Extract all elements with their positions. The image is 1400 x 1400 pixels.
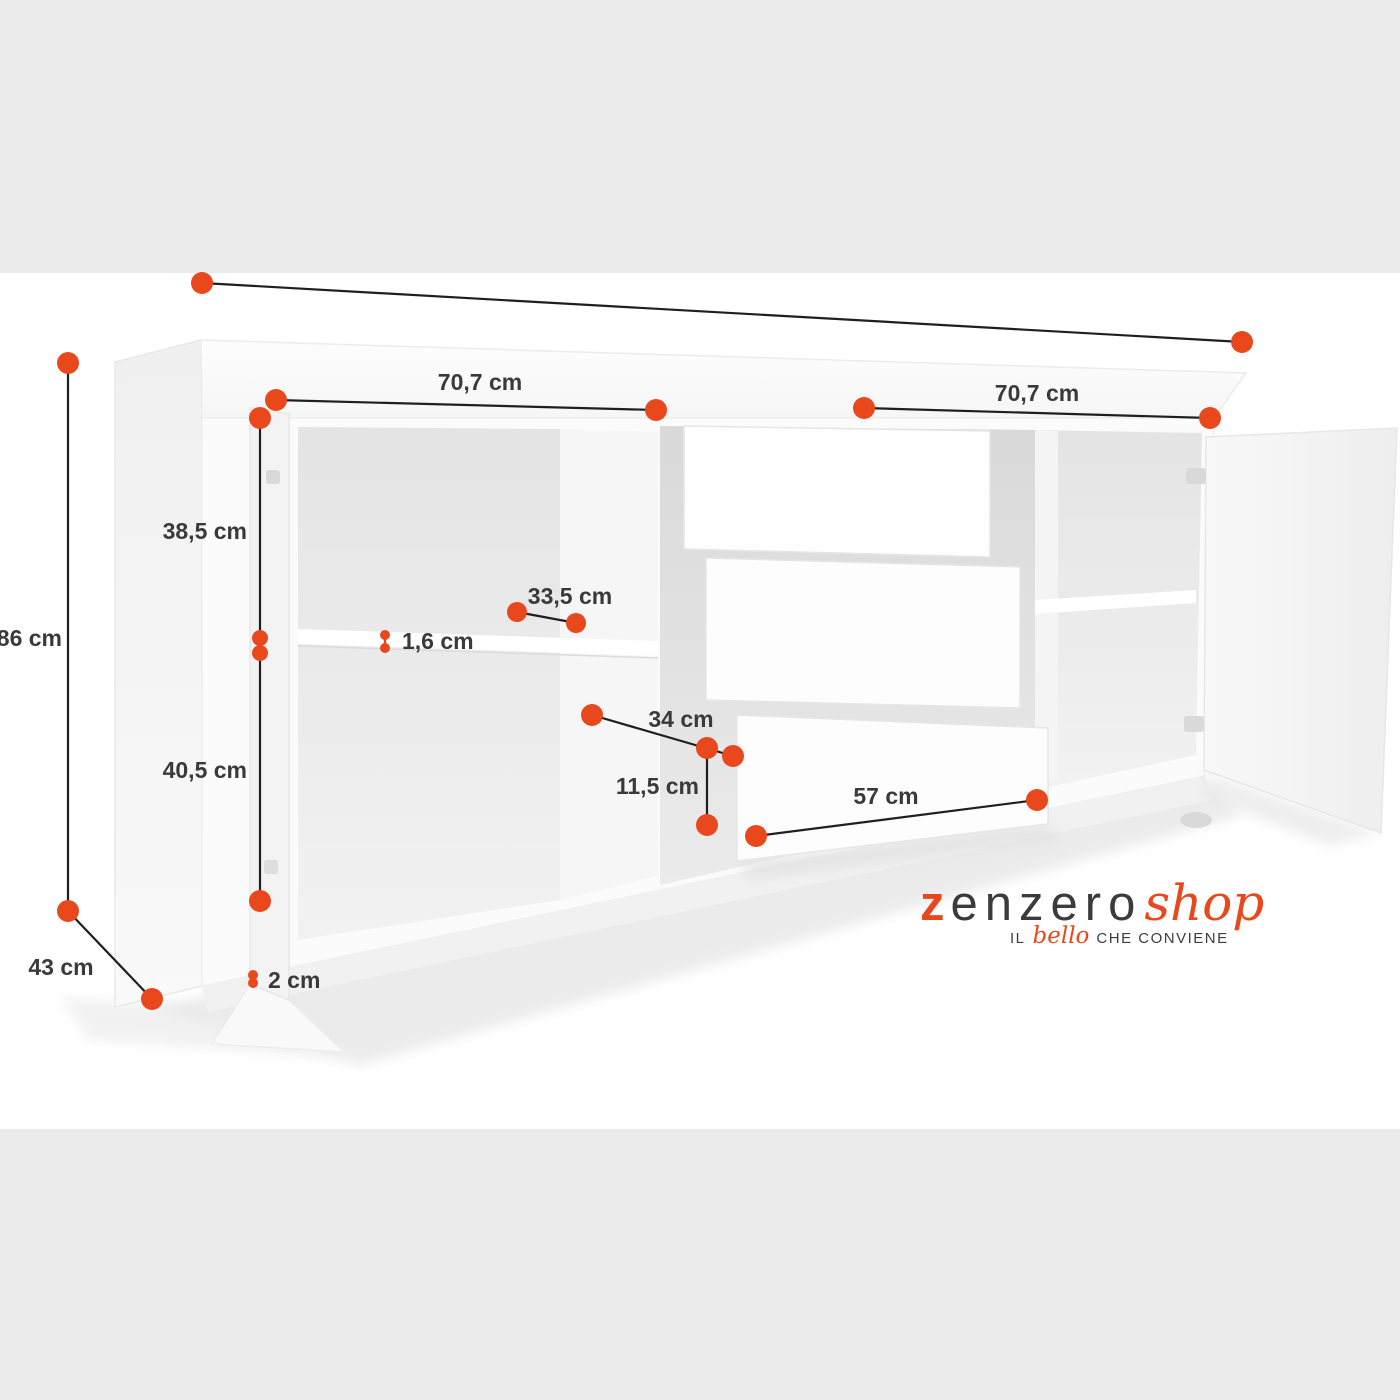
label-height: 86 cm — [0, 625, 62, 651]
dot-upper-section-top — [249, 407, 271, 429]
dot-plinth-bottom — [248, 978, 258, 988]
dot-shelf-depth-b — [566, 613, 586, 633]
label-lower-section: 40,5 cm — [163, 757, 247, 783]
dot-drawer-width-b — [1026, 789, 1048, 811]
dot-shelf-thickness-top — [380, 630, 390, 640]
dot-drawer-inner-height-bottom — [696, 814, 718, 836]
dot-upper-section-bottom — [252, 630, 268, 646]
dot-total-width-right — [1231, 331, 1253, 353]
dot-total-width-left — [191, 272, 213, 294]
product-dimension-diagram: 70,7 cm 70,7 cm 86 cm 38,5 cm 40,5 cm 33… — [0, 0, 1400, 1400]
logo-shop: shop — [1144, 878, 1264, 928]
label-drawer-inner-height: 11,5 cm — [616, 773, 699, 799]
brand-logo-wordmark: zenzeroshop — [920, 878, 1300, 929]
bottom-gray-band — [0, 1129, 1400, 1400]
cabinet-foot — [1180, 812, 1212, 828]
label-shelf-depth: 33,5 cm — [528, 583, 612, 609]
dot-width-right-b — [1199, 407, 1221, 429]
left-compartment-divider — [560, 429, 658, 900]
dot-width-left-b — [645, 399, 667, 421]
dot-lower-section-top — [252, 645, 268, 661]
right-door-hinge-top — [1186, 468, 1206, 484]
dot-shelf-thickness-bottom — [380, 643, 390, 653]
brand-logo: zenzeroshop IL bello CHE CONVIENE — [920, 878, 1300, 949]
drawer-middle — [706, 558, 1020, 708]
label-drawer-depth: 34 cm — [648, 706, 713, 732]
dot-drawer-depth-b — [722, 745, 744, 767]
dot-drawer-depth-mid — [696, 737, 718, 759]
label-width-right: 70,7 cm — [995, 380, 1079, 406]
dimension-line-total-width — [202, 283, 1242, 342]
label-shelf-thickness: 1,6 cm — [402, 628, 474, 654]
dot-height-top — [57, 352, 79, 374]
right-door-hinge-bottom — [1184, 716, 1204, 732]
label-plinth-height: 2 cm — [268, 967, 320, 993]
label-depth: 43 cm — [28, 954, 93, 980]
dot-width-left-a — [265, 389, 287, 411]
tagline-suffix: CHE CONVIENE — [1096, 930, 1228, 947]
left-door-hinge-bottom — [264, 860, 278, 874]
left-door-hinge-top — [266, 470, 280, 484]
label-upper-section: 38,5 cm — [163, 518, 247, 544]
dot-width-right-a — [853, 397, 875, 419]
drawer-top — [684, 426, 990, 557]
dot-height-bottom — [57, 900, 79, 922]
left-compartment-interior — [298, 427, 560, 940]
left-door — [250, 408, 289, 1000]
label-drawer-width: 57 cm — [853, 783, 918, 809]
dot-depth-end — [141, 988, 163, 1010]
dot-lower-section-bottom — [249, 890, 271, 912]
top-gray-band — [0, 0, 1400, 273]
logo-rest: enzero — [951, 880, 1143, 929]
cabinet-left-side — [115, 340, 202, 1007]
cabinet-top-face — [201, 340, 1246, 418]
tagline-accent: bello — [1033, 923, 1090, 949]
label-width-left: 70,7 cm — [438, 369, 522, 395]
logo-z: z — [920, 880, 951, 929]
dot-shelf-depth-a — [507, 602, 527, 622]
dot-drawer-width-a — [745, 825, 767, 847]
dot-drawer-depth-a — [581, 704, 603, 726]
tagline-prefix: IL — [1010, 930, 1026, 947]
diagram-canvas: 70,7 cm 70,7 cm 86 cm 38,5 cm 40,5 cm 33… — [0, 0, 1400, 1400]
right-door — [1204, 428, 1397, 833]
